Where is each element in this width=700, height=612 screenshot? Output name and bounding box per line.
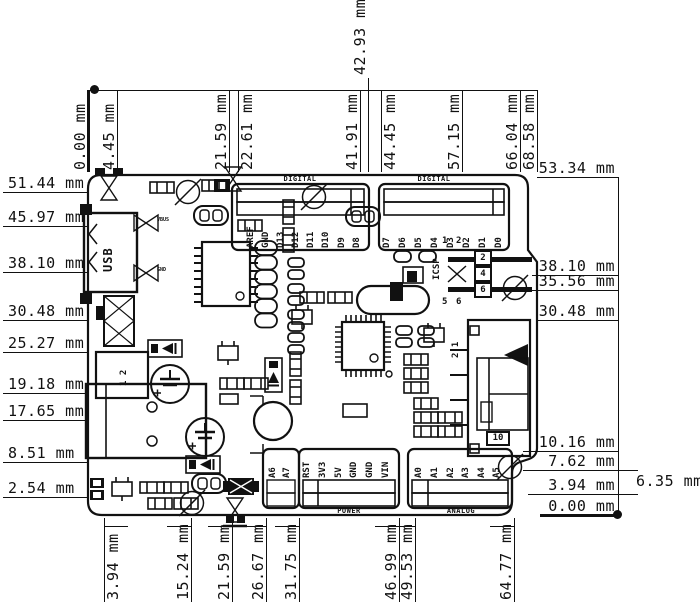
testpoint-label: VBUS (157, 218, 169, 223)
analog-header (408, 449, 512, 508)
passive (414, 398, 438, 409)
passive (148, 498, 172, 509)
pin-label: D13 (276, 232, 286, 248)
resistor (288, 333, 304, 354)
pin-label: A2 (446, 467, 456, 478)
passive (220, 394, 238, 404)
passive (343, 404, 367, 417)
pin-label: GND (365, 462, 375, 478)
pin-label: D8 (352, 237, 362, 248)
dim-ext-line (618, 494, 638, 495)
pad-slot (93, 492, 101, 498)
dim-line-left (3, 320, 88, 321)
pad-column (255, 241, 277, 328)
dim-line-right (537, 320, 618, 321)
pin-label: D3 (446, 237, 456, 248)
dim-line-left (3, 393, 88, 394)
dim-label-left: 45.97 mm (8, 209, 84, 225)
passive (220, 378, 244, 389)
dim-label-right: 7.62 mm (535, 453, 615, 469)
dim-line-left (3, 420, 88, 421)
passive (438, 426, 462, 437)
dim-label-left: 38.10 mm (8, 255, 84, 271)
header-title-digital_right: DIGITAL (394, 176, 474, 183)
dim-line-left (3, 192, 88, 193)
passive (438, 412, 462, 423)
pin-label: D5 (414, 237, 424, 248)
header-title-digital_left: DIGITAL (260, 176, 340, 183)
header-title-power: POWER (309, 508, 389, 515)
pad-slot (93, 480, 101, 486)
passive (404, 382, 428, 393)
crystal (357, 282, 429, 314)
pin-label: D12 (291, 232, 301, 248)
datum-dot-top (90, 85, 99, 94)
pad (394, 251, 411, 262)
inductor (192, 474, 226, 493)
passive (404, 368, 428, 379)
dim-line-right (537, 177, 618, 178)
dim-label-top: 0.00 mm (72, 103, 88, 170)
dim-label-left: 51.44 mm (8, 175, 84, 191)
dim-label-top: 22.61 mm (239, 94, 255, 170)
icsp-label: ICSP (432, 258, 442, 280)
dim-label-top: 42.93 mm (352, 0, 368, 75)
dim-label-right: 30.48 mm (535, 303, 615, 319)
usb-serial-ic (194, 242, 258, 306)
dim-line-right (528, 494, 618, 495)
pin-label: A4 (477, 467, 487, 478)
passive (328, 292, 352, 303)
dim-label-top: 41.91 mm (344, 94, 360, 170)
pin-label: A5 (492, 467, 502, 478)
dim-line-right (523, 470, 618, 471)
pin-label: A0 (414, 467, 424, 478)
pin-label: 3V3 (318, 462, 328, 478)
led (223, 478, 259, 495)
dim-ext-line (618, 470, 638, 471)
dim-tick (104, 526, 128, 527)
pin-label: A1 (430, 467, 440, 478)
mcu-tqfp (335, 315, 392, 377)
dim-label-top: 68.58 mm (521, 94, 537, 170)
dim-axis-right (618, 177, 619, 516)
datum-dot-right (613, 510, 622, 519)
passive (140, 482, 164, 493)
dim-label-left: 19.18 mm (8, 376, 84, 392)
pin-label: A6 (268, 467, 278, 478)
dim-label-right: 0.00 mm (535, 498, 615, 514)
dim-label-left: 8.51 mm (8, 445, 75, 461)
resistor (288, 284, 304, 305)
pin-label: A7 (282, 467, 292, 478)
usb-label: USB (100, 247, 116, 272)
transistor (112, 477, 132, 501)
dim-label-bottom: 46.99 mm (383, 524, 399, 600)
pin-label: AREF (246, 226, 256, 248)
dim-label-bottom: 15.24 mm (175, 524, 191, 600)
capacitor (254, 402, 292, 440)
aux-header (263, 449, 299, 508)
pin-label: A3 (461, 467, 471, 478)
mounting-hole (179, 490, 205, 516)
dim-label-right: 53.34 mm (535, 160, 615, 176)
pin-label: GND (261, 232, 271, 248)
dim-label-bottom: 21.59 mm (216, 524, 232, 600)
pin-label: D1 (478, 237, 488, 248)
resistor (288, 258, 304, 279)
power-header (299, 449, 399, 508)
reset-part-core (407, 271, 417, 282)
pin-label: D2 (462, 237, 472, 248)
icsp-pin-number: 6 (456, 297, 461, 307)
pad (237, 516, 245, 523)
diode (148, 340, 182, 357)
pin-label: RST (302, 462, 312, 478)
dim-label-top: 21.59 mm (213, 94, 229, 170)
mounting-hole (301, 184, 327, 210)
passive (164, 482, 188, 493)
resistor (396, 326, 412, 347)
passive (414, 412, 438, 423)
pin-label: D0 (494, 237, 504, 248)
icsp-pin-box: 6 (474, 282, 492, 298)
power-jack (86, 384, 263, 458)
dim-label-bottom: 64.77 mm (498, 524, 514, 600)
passive (414, 426, 438, 437)
icsp-pin-box: 4 (474, 266, 492, 282)
dim-label-bottom: 26.67 mm (250, 524, 266, 600)
dim-label-offset: 6.35 mm (636, 473, 700, 489)
pin-label: D7 (382, 237, 392, 248)
inductor (194, 206, 228, 225)
dim-label-right: 10.16 mm (535, 434, 615, 450)
pin-label: D4 (430, 237, 440, 248)
dim-line-left (3, 272, 88, 273)
dim-line-left (3, 462, 88, 463)
pin-label: VIN (381, 462, 391, 478)
dim-label-top: 4.45 mm (101, 103, 117, 170)
dim-label-left: 25.27 mm (8, 335, 84, 351)
passive (290, 352, 301, 376)
dim-label-bottom: 3.94 mm (105, 533, 121, 600)
mounting-hole (175, 179, 201, 205)
right-connector-pins: 2 1 (451, 342, 461, 358)
dim-label-right: 3.94 mm (535, 477, 615, 493)
dim-label-bottom: 49.53 mm (399, 524, 415, 600)
dim-label-top: 66.04 mm (504, 94, 520, 170)
dim-line-right (532, 290, 618, 291)
dim-line-left (3, 226, 88, 227)
resistor (418, 326, 434, 347)
pin-label: D6 (398, 237, 408, 248)
fiducial-marker (101, 176, 117, 200)
transistor (218, 341, 238, 365)
passive (404, 354, 428, 365)
pin-label: 5V (334, 467, 344, 478)
dim-label-left: 2.54 mm (8, 480, 75, 496)
dim-line-left (3, 352, 88, 353)
passive (283, 200, 294, 224)
transistor (292, 305, 312, 329)
testpoint-label: GND (157, 268, 166, 273)
dim-line-top (368, 78, 369, 172)
right-connector-tag: 10 (486, 431, 510, 446)
passive (150, 182, 174, 193)
header-title-analog: ANALOG (421, 508, 501, 515)
pin-label: D10 (321, 232, 331, 248)
dim-line-left (3, 497, 88, 498)
icsp-pin-box: 2 (474, 250, 492, 266)
dim-label-left: 17.65 mm (8, 403, 84, 419)
icsp-pin-number: 2 (456, 236, 461, 246)
pin-label: D11 (306, 232, 316, 248)
datum-line-top (88, 90, 537, 91)
dim-label-bottom: 31.75 mm (283, 524, 299, 600)
crossed-component (96, 296, 134, 346)
dim-label-top: 57.15 mm (446, 94, 462, 170)
dim-label-right: 35.56 mm (535, 273, 615, 289)
pcb-dimension-drawing: USB ICSP 2 4 6 1 2 5 6 1 2 2 1 10 VBUS G… (0, 0, 700, 612)
passive (290, 380, 301, 404)
pin-label: D9 (337, 237, 347, 248)
dim-label-top: 44.45 mm (382, 94, 398, 170)
dim-label-left: 30.48 mm (8, 303, 84, 319)
connector-2x1-pins: 1 2 (119, 370, 129, 386)
icsp-pin-number: 5 (442, 297, 447, 307)
pin-label: GND (349, 462, 359, 478)
